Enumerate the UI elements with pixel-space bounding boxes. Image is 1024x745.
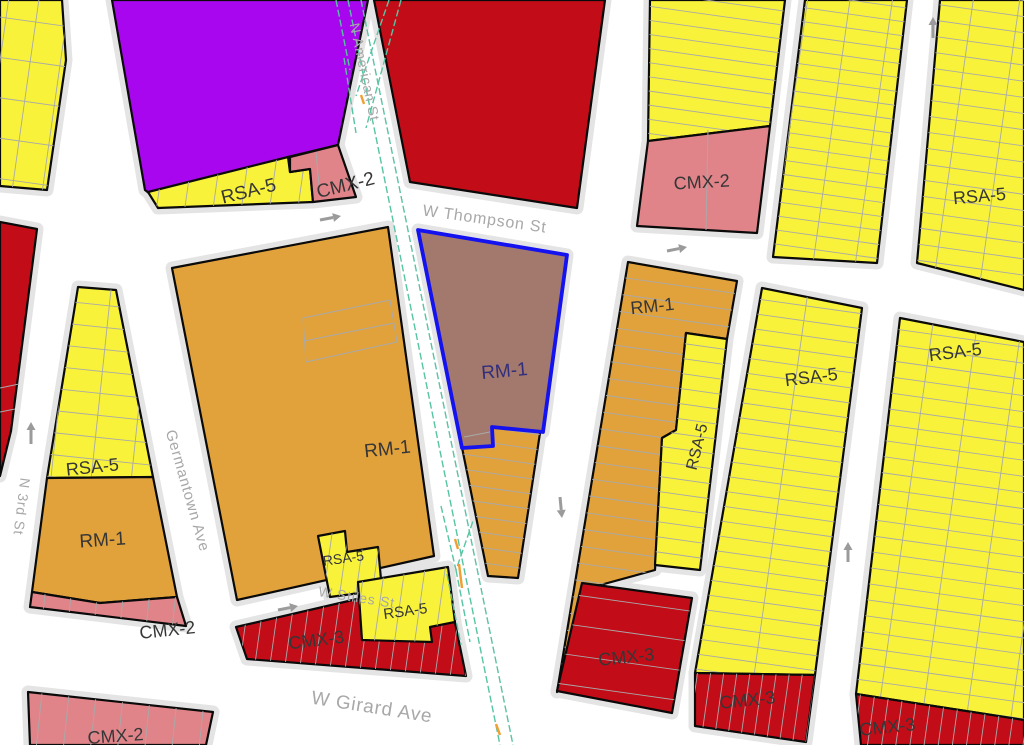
zone-label: RM-1 <box>79 528 127 552</box>
arrow-down-mid-shaft <box>560 497 561 510</box>
selected-zone-label: RM-1 <box>480 359 528 384</box>
zone-label: CMX-2 <box>87 724 144 745</box>
block-thompson-red[interactable] <box>374 0 605 208</box>
block-ne1-yellow[interactable] <box>648 0 785 141</box>
zoning-map[interactable]: N American StW Thompson StN 3rd StGerman… <box>0 0 1024 745</box>
zone-label: CMX-2 <box>673 171 730 194</box>
zoning-map-canvas[interactable]: N American StW Thompson StN 3rd StGerman… <box>0 0 1024 745</box>
